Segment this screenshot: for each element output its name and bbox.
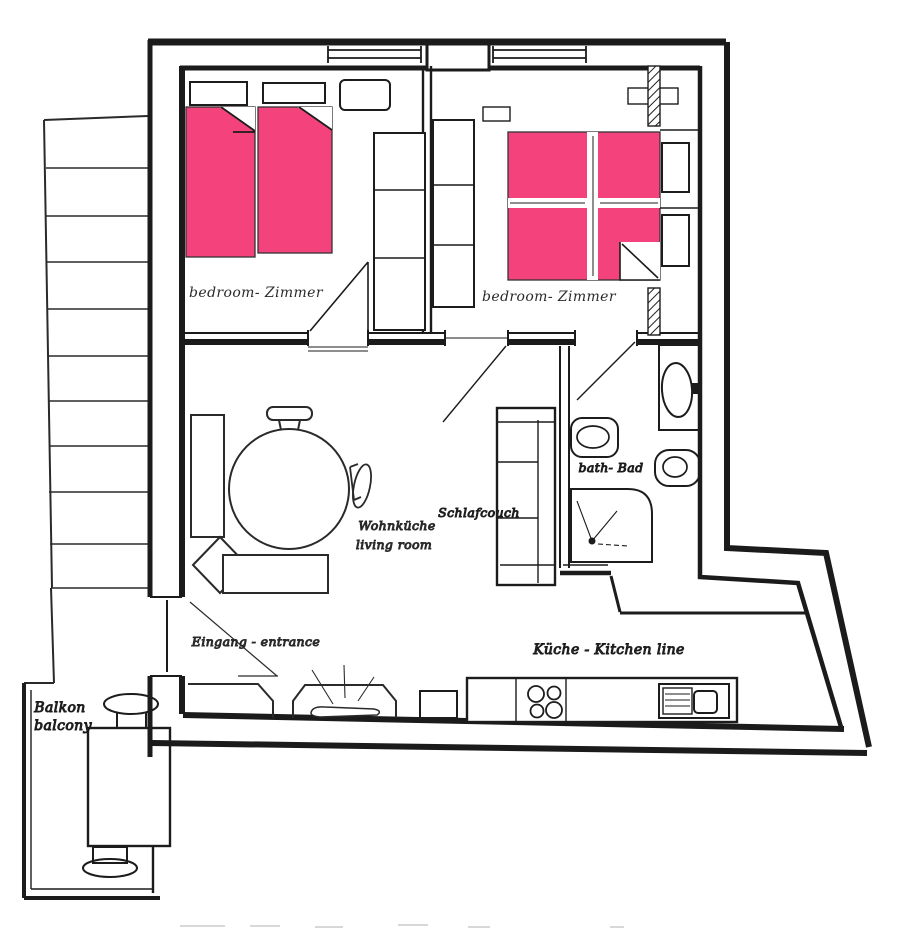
wardrobe-right-bedroom	[433, 120, 474, 307]
entrance-label: Eingang - entrance	[191, 634, 320, 649]
bath-door-swing	[577, 342, 635, 400]
window-right	[491, 46, 588, 64]
right-wall-outer	[727, 42, 869, 747]
wardrobe-left-bedroom	[374, 133, 425, 330]
living-room: Wohnküche living room	[191, 407, 436, 593]
kitchen-label: Küche - Kitchen line	[532, 642, 684, 658]
balcony-label-line2: balcony	[34, 718, 92, 734]
wall-pier-lower	[648, 288, 660, 335]
bedroom-left-label: bedroom- Zimmer	[189, 285, 324, 301]
sleeper-couch-label: Schlafcouch	[438, 505, 520, 520]
balcony-chair-bottom	[83, 847, 137, 877]
bed-double-pillow-1	[662, 143, 689, 192]
bath-sink	[659, 345, 701, 430]
entrance-area: Eingang - entrance	[188, 602, 396, 718]
stair-steps	[46, 168, 148, 588]
bathroom: bath- Bad	[560, 345, 807, 613]
living-room-label-line1: Wohnküche	[358, 518, 435, 533]
right-wall-inner	[700, 66, 841, 727]
bath-left-wall	[560, 346, 569, 568]
scan-artifacts	[180, 925, 624, 927]
floor-plan-page: Balkon balcony	[0, 0, 898, 934]
shower	[571, 489, 652, 562]
chair-right	[350, 463, 375, 509]
round-table	[229, 429, 349, 549]
floor-plan-drawing: Balkon balcony	[0, 0, 898, 934]
toilet	[655, 450, 700, 486]
living-room-label-line2: living room	[356, 537, 432, 552]
kitchen: Küche - Kitchen line	[420, 642, 737, 722]
bed-single-1	[186, 107, 255, 257]
entrance-door-jambs	[150, 597, 182, 676]
staircase	[24, 116, 148, 683]
sleeper-couch: Schlafcouch	[438, 408, 555, 585]
bottom-wall-outer	[152, 743, 867, 753]
bedroom-right: bedroom- Zimmer	[433, 66, 700, 335]
chair-top	[267, 407, 312, 430]
nightstand-left-bedroom	[340, 80, 390, 110]
bed-single-2-pillow	[263, 83, 325, 103]
bed-double-pillow-2	[662, 215, 689, 266]
window-pillar	[427, 44, 489, 70]
wall-pier-upper	[648, 66, 660, 126]
washbasin	[571, 418, 618, 457]
bedroom-left: bedroom- Zimmer	[186, 80, 425, 330]
bed-single-2	[258, 107, 332, 253]
bedroom-right-label: bedroom- Zimmer	[482, 289, 617, 305]
balcony-label-line1: Balkon	[33, 700, 85, 716]
bath-label: bath- Bad	[579, 460, 644, 475]
window-left	[326, 46, 423, 64]
counter-left-cabinet	[420, 691, 457, 718]
staircase-outline	[24, 116, 148, 683]
bed-single-1-pillow	[190, 82, 247, 105]
entry-shoe-shape	[311, 707, 379, 717]
sleeper-couch-body	[497, 408, 555, 585]
shelf-top-left	[483, 107, 510, 121]
